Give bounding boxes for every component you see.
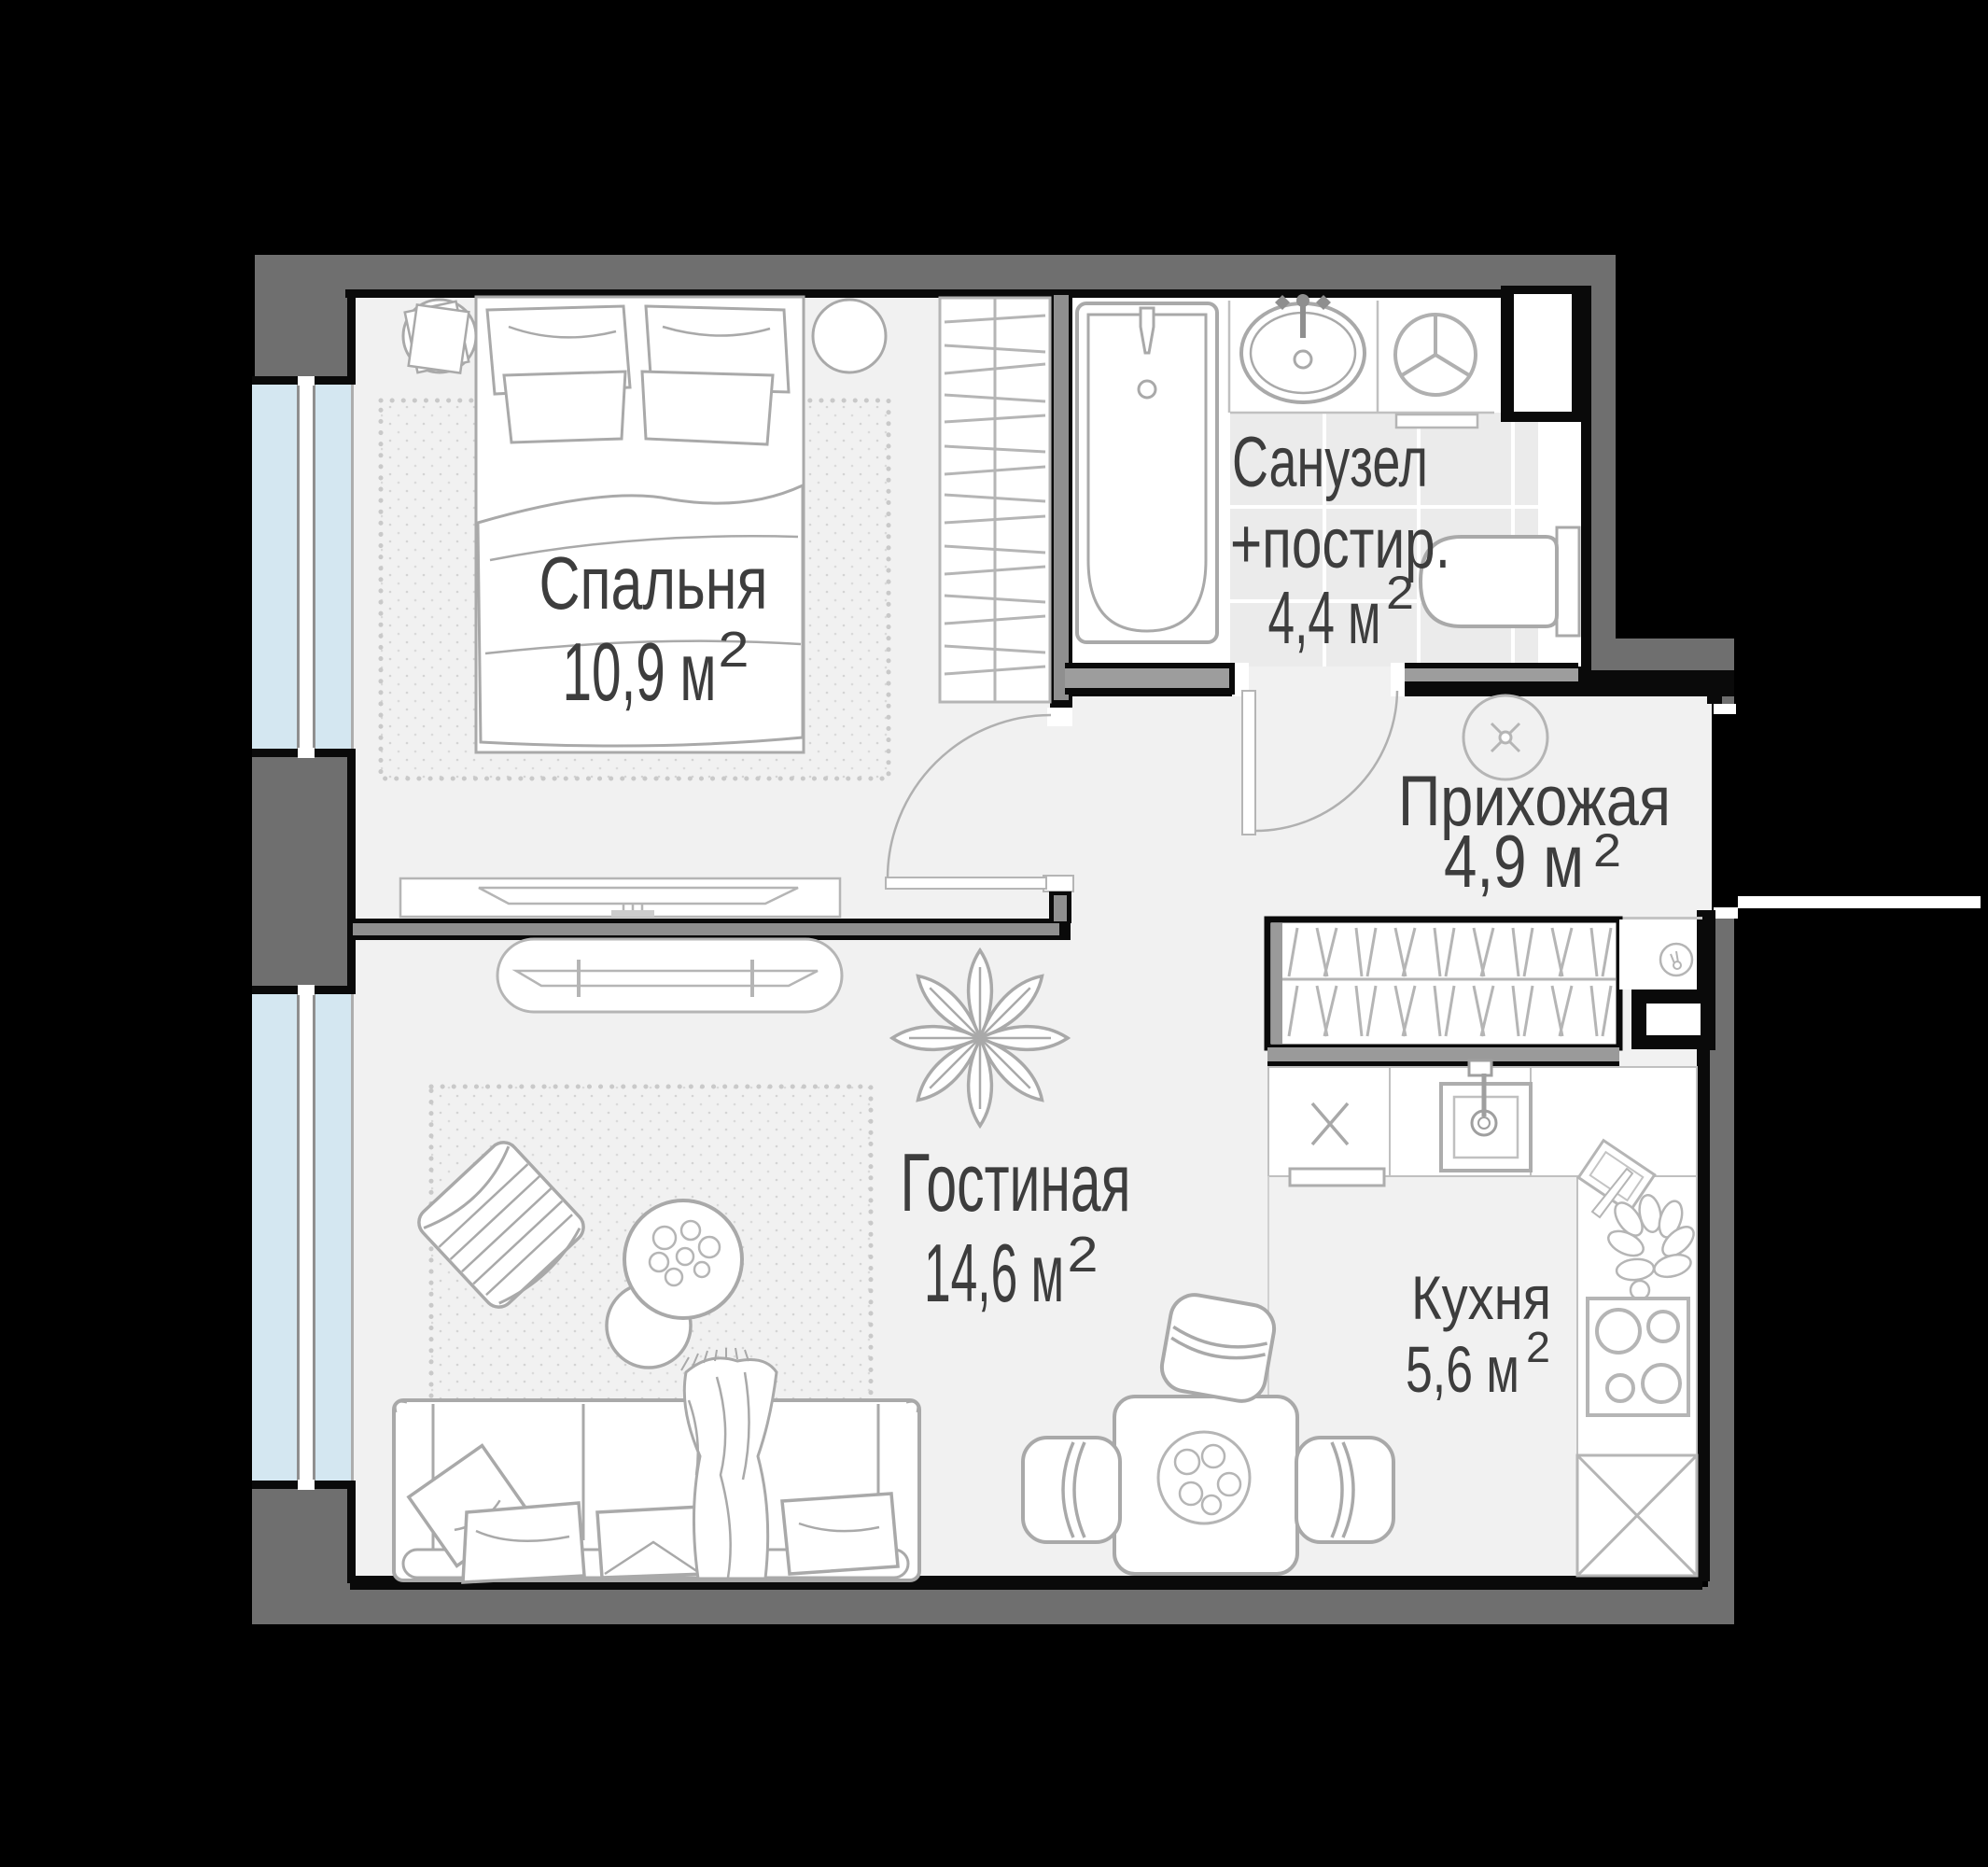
- svg-text:4,9 м: 4,9 м: [1444, 820, 1584, 903]
- svg-text:5,6 м: 5,6 м: [1406, 1333, 1519, 1406]
- svg-text:Гостиная: Гостиная: [901, 1136, 1131, 1228]
- svg-text:2: 2: [1386, 567, 1414, 619]
- svg-text:Санузел: Санузел: [1232, 423, 1428, 502]
- svg-text:4,4 м: 4,4 м: [1268, 576, 1381, 659]
- svg-text:14,6 м: 14,6 м: [924, 1227, 1064, 1319]
- svg-text:+постир.: +постир.: [1230, 504, 1450, 583]
- svg-text:10,9 м: 10,9 м: [563, 625, 717, 718]
- svg-text:2: 2: [719, 622, 749, 678]
- svg-text:2: 2: [1593, 824, 1621, 877]
- svg-text:2: 2: [1526, 1323, 1550, 1371]
- svg-text:2: 2: [1068, 1227, 1099, 1283]
- svg-text:Кухня: Кухня: [1411, 1263, 1551, 1332]
- svg-text:Спальня: Спальня: [539, 541, 768, 625]
